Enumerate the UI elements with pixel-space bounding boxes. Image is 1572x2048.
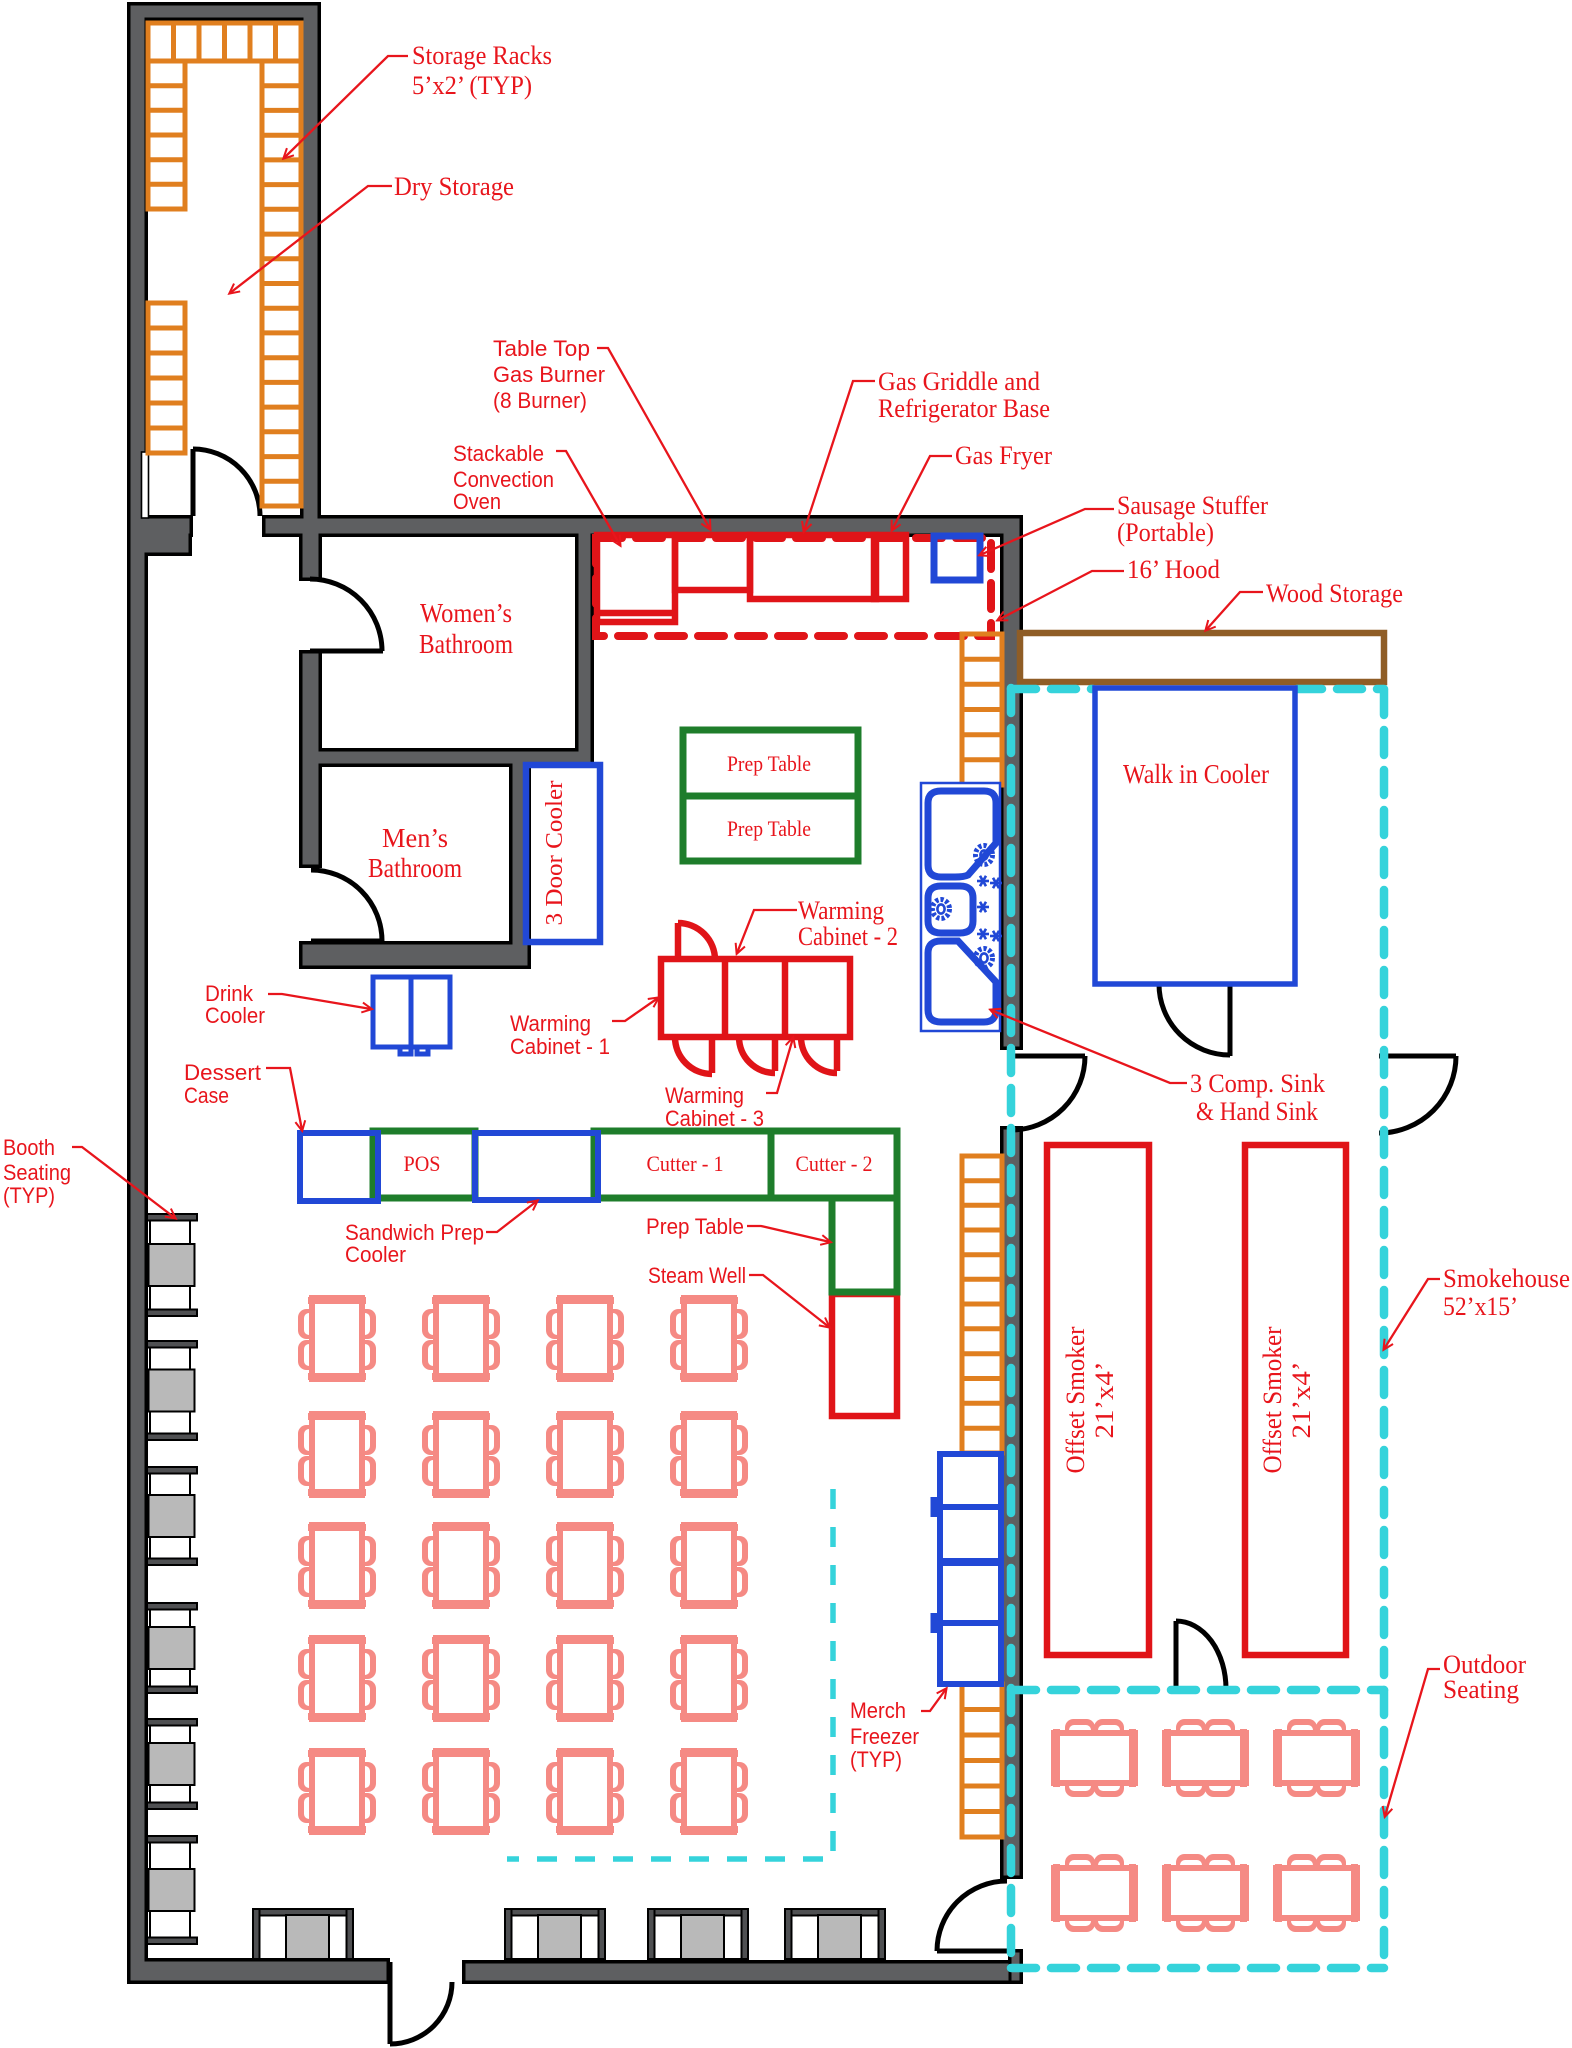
svg-text:Cooler: Cooler (205, 1003, 265, 1028)
svg-text:Walk in Cooler: Walk in Cooler (1123, 759, 1269, 789)
svg-text:Warming: Warming (798, 896, 884, 925)
svg-text:Men’s: Men’s (382, 823, 448, 853)
svg-text:Seating: Seating (3, 1160, 71, 1185)
svg-text:Cutter - 2: Cutter - 2 (796, 1151, 873, 1176)
svg-text:Bathroom: Bathroom (419, 629, 513, 659)
svg-text:16’ Hood: 16’ Hood (1127, 555, 1220, 584)
svg-text:Bathroom: Bathroom (368, 853, 462, 883)
svg-text:(TYP): (TYP) (850, 1747, 902, 1772)
svg-text:Seating: Seating (1443, 1675, 1519, 1704)
svg-text:Cabinet - 1: Cabinet - 1 (510, 1034, 610, 1059)
svg-text:Gas Fryer: Gas Fryer (955, 441, 1052, 470)
svg-text:Warming: Warming (510, 1011, 591, 1036)
svg-text:Prep Table: Prep Table (727, 816, 811, 841)
svg-text:Cabinet - 2: Cabinet - 2 (798, 922, 898, 951)
svg-text:Cutter - 1: Cutter - 1 (647, 1151, 724, 1176)
svg-text:3 Door Cooler: 3 Door Cooler (542, 781, 568, 926)
svg-text:Smokehouse: Smokehouse (1443, 1264, 1570, 1293)
svg-text:Storage Racks: Storage Racks (412, 41, 552, 70)
svg-text:Sausage Stuffer: Sausage Stuffer (1117, 491, 1268, 520)
svg-text:POS: POS (404, 1151, 441, 1176)
svg-text:(TYP): (TYP) (3, 1183, 55, 1208)
svg-text:Women’s: Women’s (420, 598, 512, 628)
svg-text:& Hand Sink: & Hand Sink (1196, 1097, 1318, 1126)
svg-text:Dessert: Dessert (184, 1060, 261, 1085)
svg-text:5’x2’ (TYP): 5’x2’ (TYP) (412, 71, 532, 100)
svg-text:Prep Table: Prep Table (727, 751, 811, 776)
svg-text:Gas Griddle and: Gas Griddle and (878, 367, 1040, 396)
svg-text:Stackable: Stackable (453, 441, 544, 466)
svg-text:Prep Table: Prep Table (646, 1214, 744, 1239)
svg-text:52’x15’: 52’x15’ (1443, 1292, 1518, 1321)
svg-text:(Portable): (Portable) (1117, 518, 1214, 547)
svg-text:3 Comp. Sink: 3 Comp. Sink (1190, 1069, 1325, 1098)
svg-text:(8 Burner): (8 Burner) (493, 388, 587, 413)
svg-text:Oven: Oven (453, 489, 501, 514)
svg-text:Dry Storage: Dry Storage (394, 172, 514, 201)
svg-text:Table Top: Table Top (493, 336, 590, 361)
svg-text:Booth: Booth (3, 1135, 55, 1160)
svg-text:Steam Well: Steam Well (648, 1263, 746, 1288)
svg-text:Cooler: Cooler (345, 1242, 406, 1267)
svg-text:Refrigerator Base: Refrigerator Base (878, 394, 1050, 423)
svg-text:Warming: Warming (665, 1083, 744, 1108)
svg-text:Wood Storage: Wood Storage (1266, 579, 1403, 608)
svg-text:Merch: Merch (850, 1698, 906, 1723)
svg-text:Gas Burner: Gas Burner (493, 362, 605, 387)
svg-text:Cabinet - 3: Cabinet - 3 (665, 1106, 764, 1131)
svg-text:Freezer: Freezer (850, 1724, 919, 1749)
svg-text:Case: Case (184, 1083, 229, 1108)
